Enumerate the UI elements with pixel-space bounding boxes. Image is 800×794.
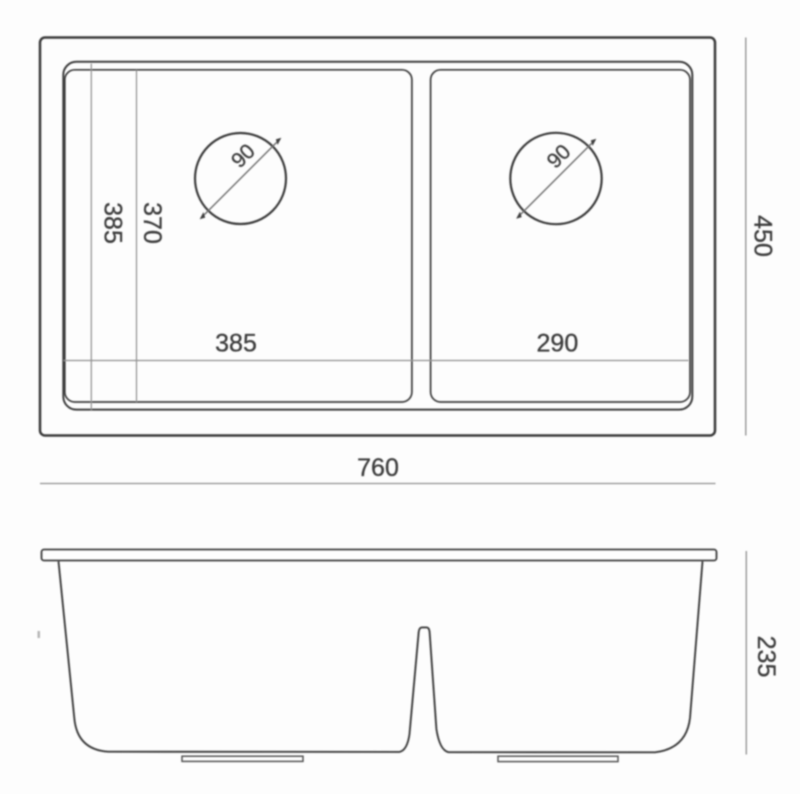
svg-text:370: 370 xyxy=(138,202,166,244)
svg-text:760: 760 xyxy=(357,454,399,482)
svg-text:90: 90 xyxy=(543,140,576,173)
svg-text:385: 385 xyxy=(98,202,126,244)
svg-text:235: 235 xyxy=(752,636,780,678)
svg-text:450: 450 xyxy=(749,215,777,257)
svg-text:385: 385 xyxy=(215,330,257,358)
svg-text:290: 290 xyxy=(537,330,579,358)
svg-text:90: 90 xyxy=(227,140,260,173)
